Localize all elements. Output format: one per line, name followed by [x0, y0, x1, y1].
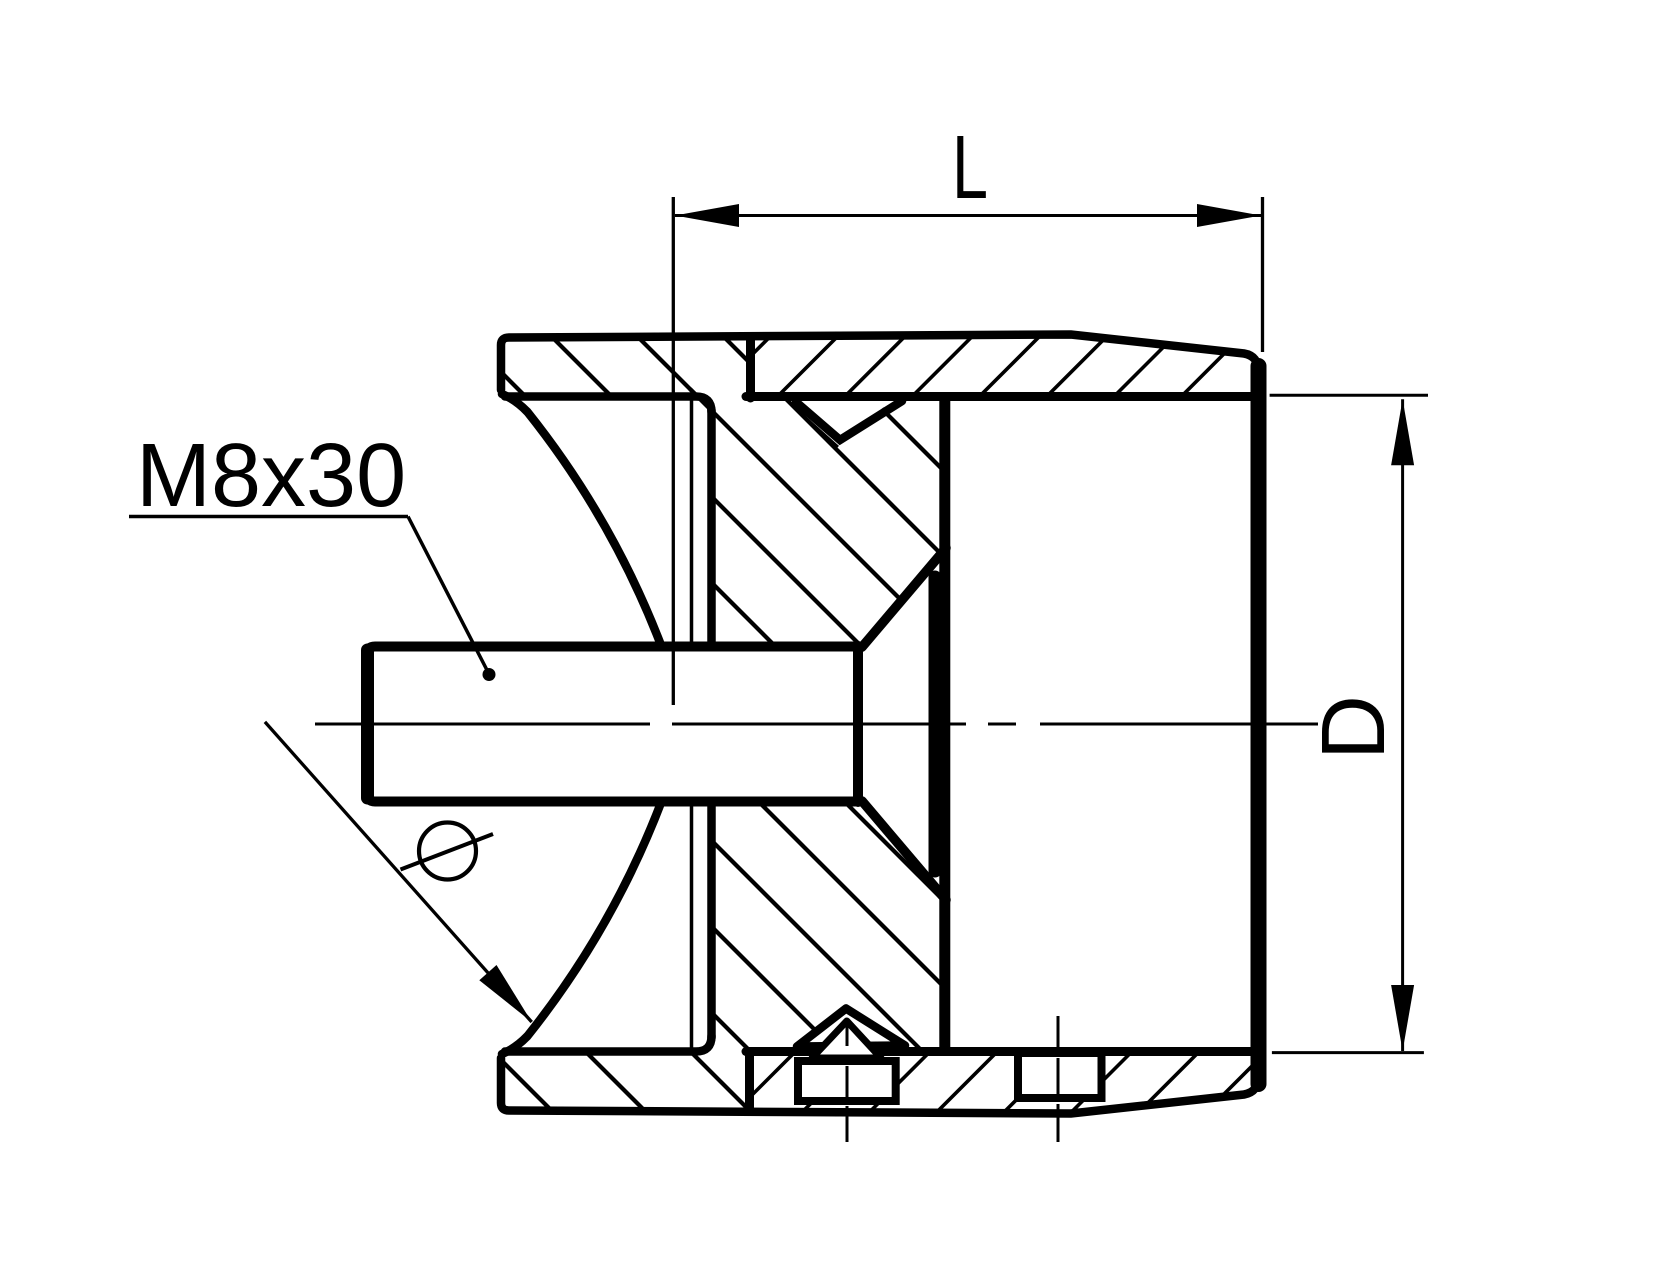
svg-text:M8x30: M8x30 — [136, 426, 406, 526]
svg-text:L: L — [952, 118, 988, 218]
svg-text:D: D — [1304, 695, 1404, 760]
